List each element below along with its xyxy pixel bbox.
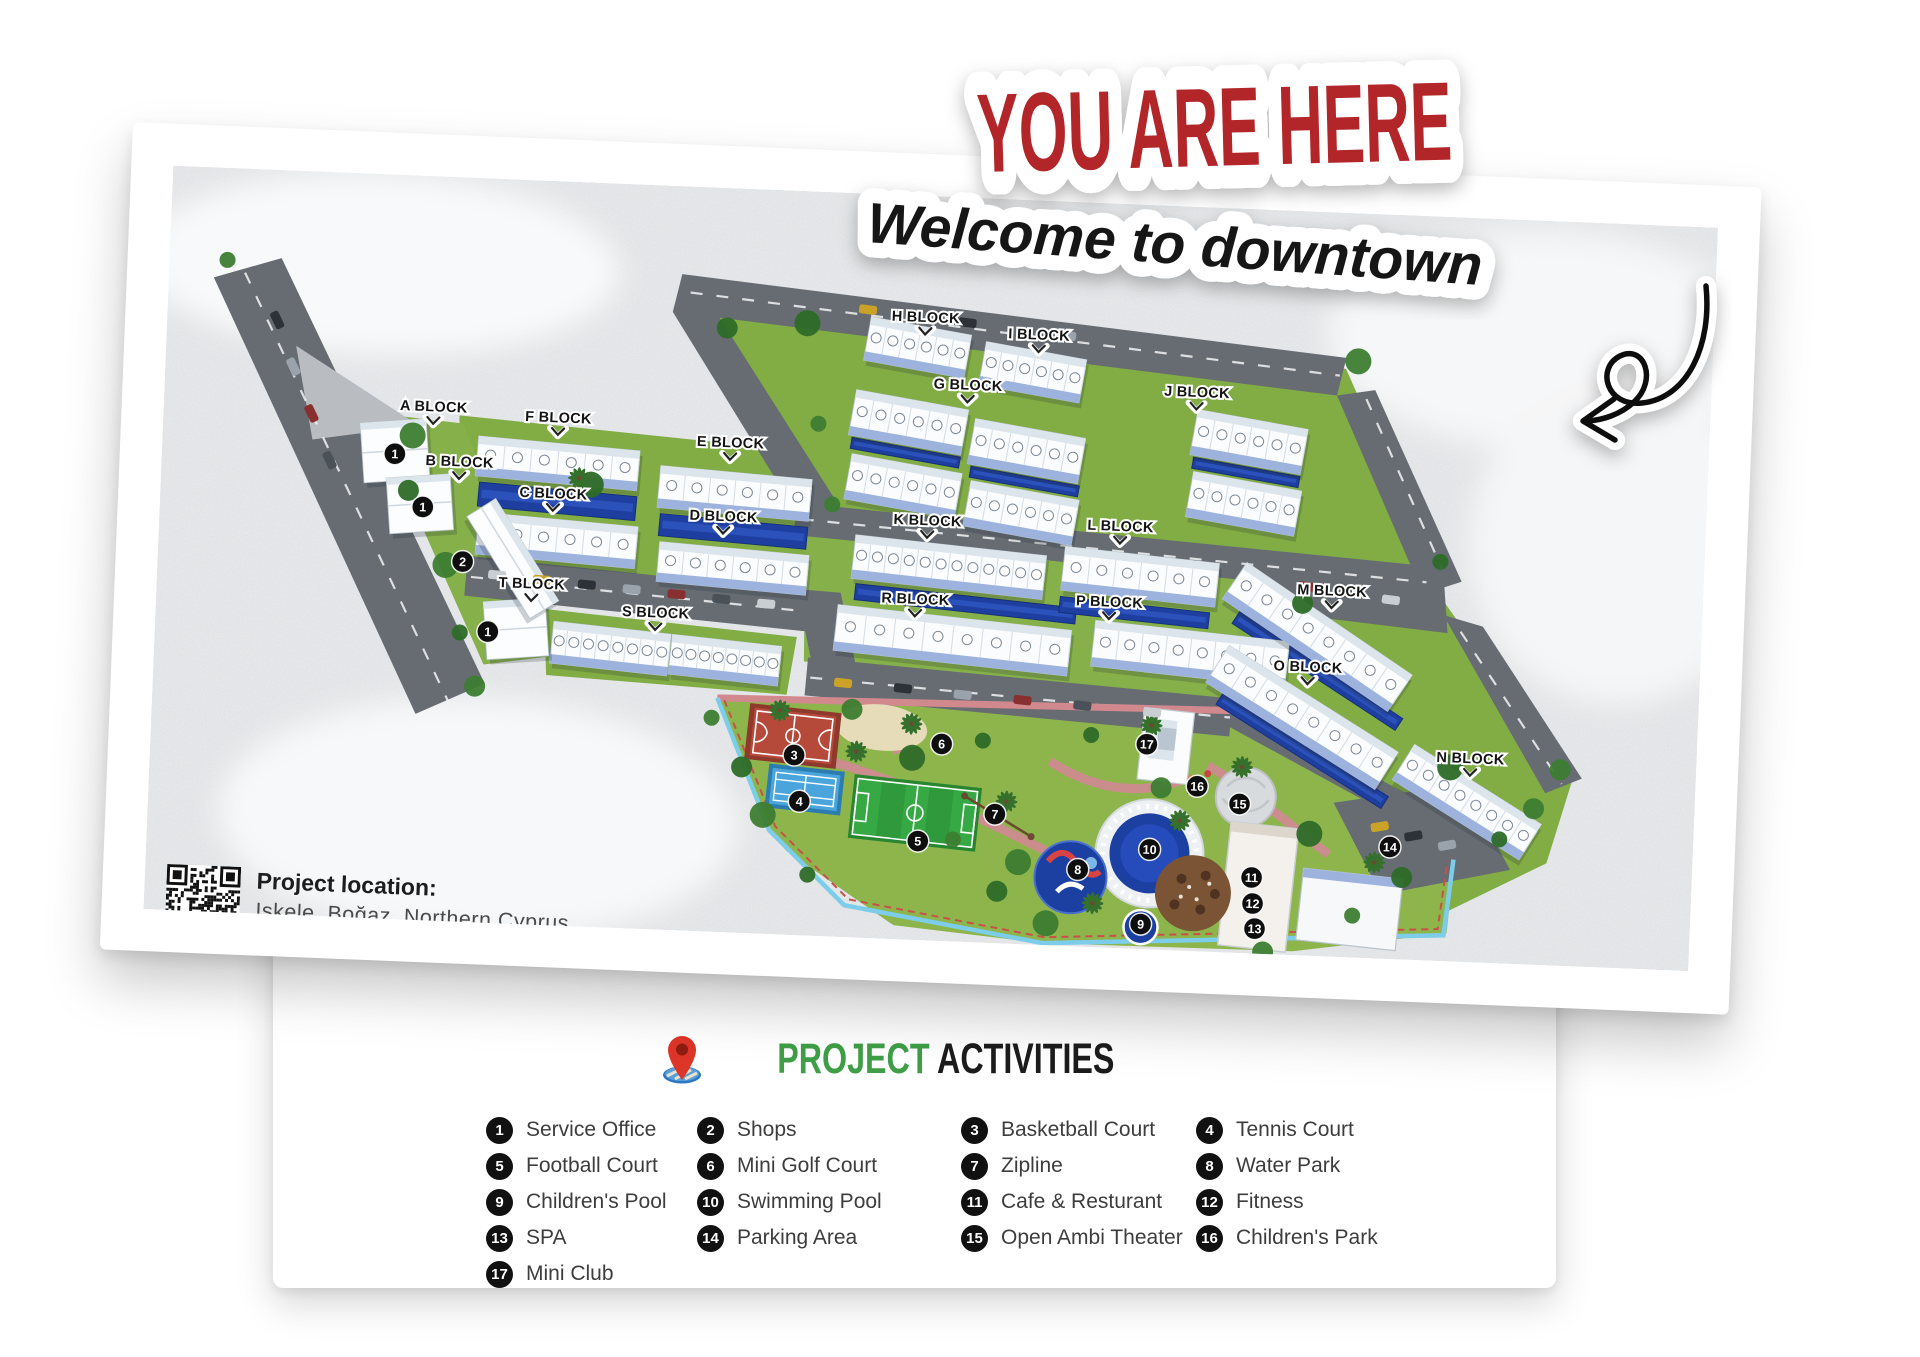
legend-item-number: 9 — [486, 1189, 513, 1216]
svg-text:1: 1 — [484, 625, 492, 639]
map-badge: 14 — [1378, 836, 1401, 859]
legend-item-number: 6 — [697, 1153, 724, 1180]
map-badge: 16 — [1186, 775, 1209, 798]
legend-item-label: Mini Golf Court — [737, 1154, 877, 1178]
map-pin-icon — [659, 1033, 705, 1085]
legend-item-label: Swimming Pool — [737, 1190, 882, 1214]
legend-item: 9Children's Pool — [486, 1189, 697, 1216]
svg-text:8: 8 — [1074, 863, 1082, 877]
legend-item-label: Service Office — [526, 1118, 656, 1142]
svg-text:N BLOCK: N BLOCK — [1436, 750, 1505, 769]
svg-text:M BLOCK: M BLOCK — [1297, 582, 1368, 601]
legend-item: 15Open Ambi Theater — [961, 1225, 1196, 1252]
legend-item-number: 17 — [486, 1261, 513, 1288]
legend-item-label: SPA — [526, 1226, 566, 1250]
map-badge: 5 — [906, 830, 929, 853]
map-badge: 15 — [1228, 793, 1251, 816]
legend-item: 6Mini Golf Court — [697, 1153, 961, 1180]
map-badge: 3 — [783, 744, 806, 767]
svg-text:K BLOCK: K BLOCK — [893, 512, 962, 531]
svg-text:11: 11 — [1245, 871, 1259, 886]
svg-text:1: 1 — [419, 500, 427, 514]
legend-item-number: 15 — [961, 1225, 988, 1252]
legend-title: PROJECTACTIVITIES — [777, 1035, 1114, 1084]
svg-text:5: 5 — [914, 834, 922, 848]
svg-text:A BLOCK: A BLOCK — [400, 398, 468, 417]
map-badge: 6 — [930, 733, 953, 756]
legend-item-label: Water Park — [1236, 1154, 1340, 1178]
map-badge: 11 — [1240, 866, 1263, 889]
map-paper: A BLOCKB BLOCKC BLOCKD BLOCKE BLOCKF BLO… — [143, 166, 1718, 971]
legend-item: 17Mini Club — [486, 1261, 697, 1288]
legend-item-number: 13 — [486, 1225, 513, 1252]
legend-item-label: Open Ambi Theater — [1001, 1226, 1183, 1250]
legend-item-label: Shops — [737, 1118, 797, 1142]
legend-item: 3Basketball Court — [961, 1117, 1196, 1144]
map-badge: 1 — [383, 442, 406, 465]
legend-item: 12Fitness — [1196, 1189, 1556, 1216]
legend-title-activities: ACTIVITIES — [937, 1035, 1114, 1083]
legend-item: 16Children's Park — [1196, 1225, 1556, 1252]
svg-text:H BLOCK: H BLOCK — [891, 309, 960, 328]
svg-text:14: 14 — [1383, 840, 1398, 855]
legend-item-number: 5 — [486, 1153, 513, 1180]
legend-item-label: Mini Club — [526, 1262, 614, 1286]
map-card: A BLOCKB BLOCKC BLOCKD BLOCKE BLOCKF BLO… — [100, 122, 1762, 1015]
map-badge: 12 — [1241, 892, 1264, 915]
legend-item: 11Cafe & Resturant — [961, 1189, 1196, 1216]
map-badge: 1 — [476, 620, 499, 643]
legend-item-label: Zipline — [1001, 1154, 1063, 1178]
legend-item-number: 16 — [1196, 1225, 1223, 1252]
legend-item-label: Children's Pool — [526, 1190, 667, 1214]
legend-item-number: 2 — [697, 1117, 724, 1144]
qr-code — [164, 864, 241, 941]
svg-text:4: 4 — [796, 795, 804, 809]
legend-item: 13SPA — [486, 1225, 697, 1252]
svg-text:E BLOCK: E BLOCK — [697, 434, 765, 453]
svg-text:6: 6 — [938, 737, 946, 751]
svg-text:S BLOCK: S BLOCK — [622, 604, 690, 623]
legend-item-number: 7 — [961, 1153, 988, 1180]
map-badge: 2 — [451, 550, 474, 573]
map-badge: 7 — [983, 803, 1006, 826]
svg-text:L BLOCK: L BLOCK — [1087, 518, 1154, 537]
svg-text:12: 12 — [1245, 897, 1260, 912]
svg-text:D BLOCK: D BLOCK — [689, 508, 758, 527]
legend-item: 2Shops — [697, 1117, 961, 1144]
legend-item-label: Children's Park — [1236, 1226, 1378, 1250]
legend-item: 1Service Office — [486, 1117, 697, 1144]
svg-text:3: 3 — [790, 748, 798, 762]
legend-item: 14Parking Area — [697, 1225, 961, 1252]
legend-item: 4Tennis Court — [1196, 1117, 1556, 1144]
svg-text:9: 9 — [1137, 917, 1145, 931]
legend-item-label: Basketball Court — [1001, 1118, 1155, 1142]
svg-text:10: 10 — [1142, 843, 1157, 858]
svg-text:C BLOCK: C BLOCK — [519, 485, 588, 504]
svg-text:15: 15 — [1232, 797, 1247, 812]
svg-text:2: 2 — [459, 555, 467, 569]
svg-text:F BLOCK: F BLOCK — [525, 409, 592, 428]
svg-text:17: 17 — [1140, 737, 1155, 752]
svg-text:J BLOCK: J BLOCK — [1164, 384, 1231, 403]
legend-item-label: Parking Area — [737, 1226, 857, 1250]
map-badge: 8 — [1066, 858, 1089, 881]
legend-item-label: Fitness — [1236, 1190, 1304, 1214]
legend-item-number: 4 — [1196, 1117, 1223, 1144]
legend-item-number: 10 — [697, 1189, 724, 1216]
map-badge: 10 — [1138, 838, 1161, 861]
svg-text:16: 16 — [1190, 779, 1205, 794]
map-badge: 17 — [1135, 733, 1158, 756]
svg-text:P BLOCK: P BLOCK — [1076, 593, 1144, 612]
svg-text:R BLOCK: R BLOCK — [881, 590, 950, 609]
project-location: Project location: Iskele, Boğaz, Norther… — [164, 864, 570, 954]
legend-item-number: 14 — [697, 1225, 724, 1252]
legend-item-number: 3 — [961, 1117, 988, 1144]
legend-item: 10Swimming Pool — [697, 1189, 961, 1216]
map-badge: 1 — [411, 496, 434, 519]
legend-item: 8Water Park — [1196, 1153, 1556, 1180]
legend-item-label: Cafe & Resturant — [1001, 1190, 1162, 1214]
legend-item-number: 8 — [1196, 1153, 1223, 1180]
map-badge: 4 — [788, 790, 811, 813]
svg-text:13: 13 — [1247, 922, 1262, 937]
svg-text:I BLOCK: I BLOCK — [1008, 326, 1071, 344]
legend-item-number: 12 — [1196, 1189, 1223, 1216]
svg-text:B BLOCK: B BLOCK — [425, 453, 494, 472]
site-map-poster: PROJECTACTIVITIES 1Service Office2Shops3… — [0, 0, 1920, 1357]
legend-item-number: 1 — [486, 1117, 513, 1144]
site-map: A BLOCKB BLOCKC BLOCKD BLOCKE BLOCKF BLO… — [143, 166, 1718, 971]
svg-text:O BLOCK: O BLOCK — [1273, 658, 1343, 677]
svg-text:1: 1 — [391, 447, 399, 461]
legend-items: 1Service Office2Shops3Basketball Court4T… — [273, 1112, 1556, 1292]
legend-header: PROJECTACTIVITIES — [273, 1030, 1556, 1088]
svg-text:7: 7 — [991, 808, 999, 822]
legend-item-label: Tennis Court — [1236, 1118, 1354, 1142]
legend-title-project: PROJECT — [777, 1035, 929, 1083]
svg-text:G BLOCK: G BLOCK — [933, 376, 1003, 395]
legend-item: 7Zipline — [961, 1153, 1196, 1180]
legend-item: 5Football Court — [486, 1153, 697, 1180]
legend-item-number: 11 — [961, 1189, 988, 1216]
legend-item-label: Football Court — [526, 1154, 658, 1178]
map-badge: 9 — [1129, 913, 1152, 936]
map-badge: 13 — [1243, 917, 1266, 940]
svg-text:T BLOCK: T BLOCK — [498, 575, 565, 594]
